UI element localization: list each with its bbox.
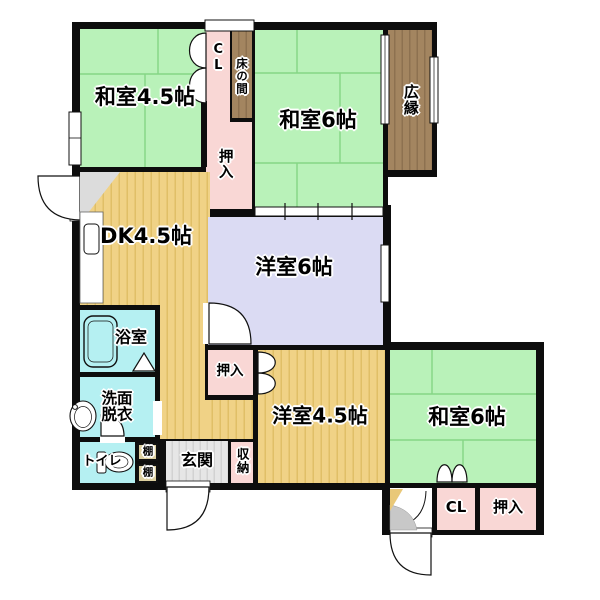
room-rear-entry [390, 488, 432, 528]
label-dk: DK4.5帖 [100, 225, 192, 247]
label-tokonoma: 床の間 [236, 57, 248, 95]
room-yoshitsu-6 [208, 217, 383, 345]
label-oshiire-mid: 押入 [217, 364, 244, 378]
label-washitsu-4-5: 和室4.5帖 [95, 86, 195, 108]
wall-segment-cl [201, 101, 207, 167]
label-shuunou: 収納 [235, 448, 248, 475]
label-oshiire-top: 押入 [216, 149, 231, 180]
room-hallway-ext [205, 400, 253, 439]
label-genkan: 玄関 [181, 453, 213, 470]
label-senmen: 洗面脱衣 [98, 391, 136, 424]
door-arc-rear-exterior [390, 533, 431, 575]
label-washitsu-6-top: 和室6帖 [279, 109, 357, 131]
room-oshiire-top [230, 122, 252, 209]
label-bath: 浴室 [115, 330, 147, 347]
label-yoshitsu-4-5: 洋室4.5帖 [272, 406, 367, 427]
label-toilet: トイレ [82, 455, 121, 469]
label-washitsu-6-btm: 和室6帖 [428, 406, 506, 428]
label-oshiire-btm: 押入 [493, 500, 523, 516]
label-hiroen: 広縁 [402, 84, 418, 116]
floor-plan: 和室4.5帖 CL 床の間 押入 和室6帖 広縁 DK4.5帖 洋室6帖 浴室 … [0, 0, 600, 600]
label-shelf-lower: 棚 [143, 467, 154, 478]
room-hallway [160, 297, 205, 439]
label-shelf-upper: 棚 [143, 446, 154, 457]
door-arc-genkan [167, 487, 209, 530]
label-cl-top: CL [211, 42, 225, 74]
label-cl-btm: CL [446, 500, 467, 516]
label-yoshitsu-6: 洋室6帖 [255, 256, 333, 278]
